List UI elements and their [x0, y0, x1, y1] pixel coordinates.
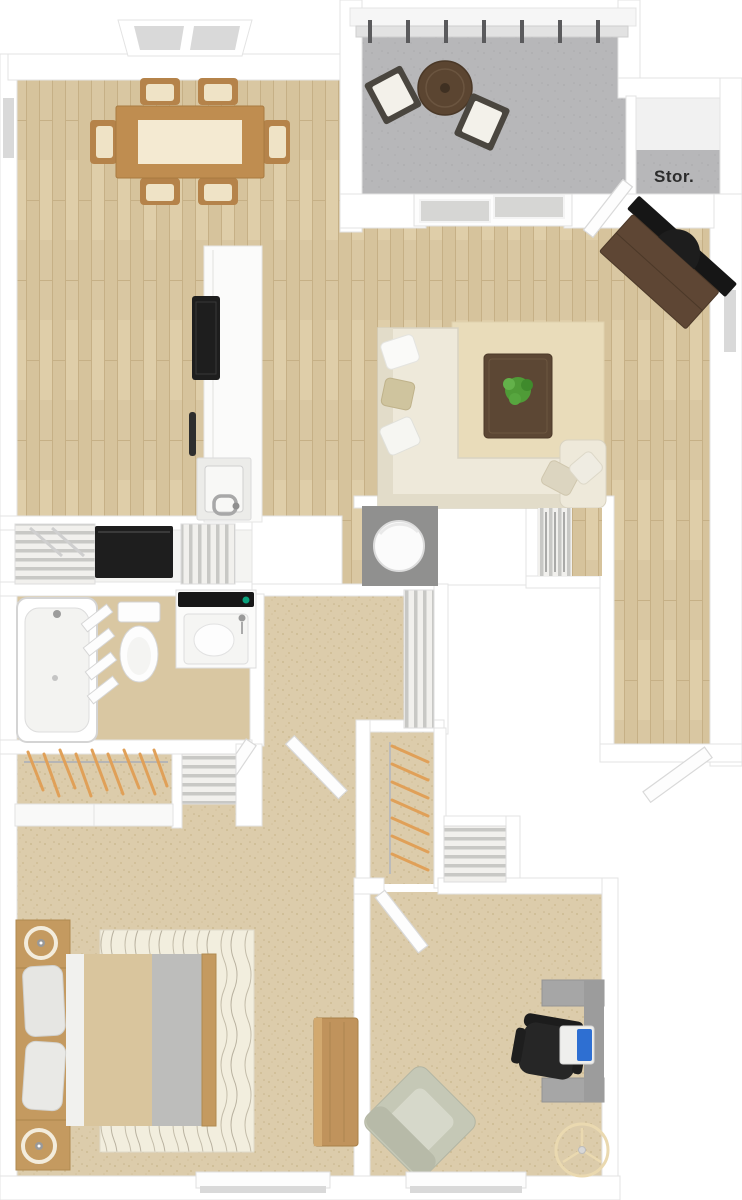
left-wall-window [3, 98, 14, 158]
office-shelf-closet [444, 826, 506, 882]
entry-coat-closet [538, 508, 602, 576]
sheet [66, 954, 84, 1126]
coffee-table [484, 354, 552, 438]
bathtub [17, 598, 97, 742]
blanket [84, 954, 152, 1126]
patio-table [418, 61, 472, 115]
bathroom-vanity [176, 590, 256, 668]
office-closet-floor [370, 732, 436, 884]
hall-pantry-shelves [404, 590, 434, 728]
sink-faucet [239, 615, 246, 622]
laptop [560, 1026, 594, 1064]
washer-dryer [95, 526, 173, 578]
dishwasher-handle [189, 412, 196, 456]
bedroom-closet-doors [15, 804, 173, 826]
pillow [22, 1041, 67, 1112]
office-window [406, 1172, 526, 1193]
water-heater-closet [362, 506, 438, 586]
bed-runner [152, 954, 202, 1126]
patio-sliding-door [414, 194, 572, 226]
bedroom-shelf-closet [182, 754, 236, 804]
bay-window [118, 20, 252, 56]
pillow [22, 965, 66, 1037]
dresser [314, 1018, 358, 1146]
footboard [202, 954, 216, 1126]
water-heater [374, 521, 424, 571]
storage-label: Stor. [654, 167, 694, 186]
floor-plan-svg: Stor. [0, 0, 742, 1200]
toilet [118, 602, 160, 682]
laptop-screen [577, 1029, 592, 1061]
tub-faucet [53, 610, 61, 618]
floor-plan-canvas: Stor. [0, 0, 742, 1200]
bedroom-window [196, 1172, 330, 1193]
shelf-closet [181, 524, 235, 584]
entry-corridor-floor [612, 505, 712, 747]
right-wall-window [724, 290, 736, 352]
storage-back-wall [634, 96, 734, 150]
